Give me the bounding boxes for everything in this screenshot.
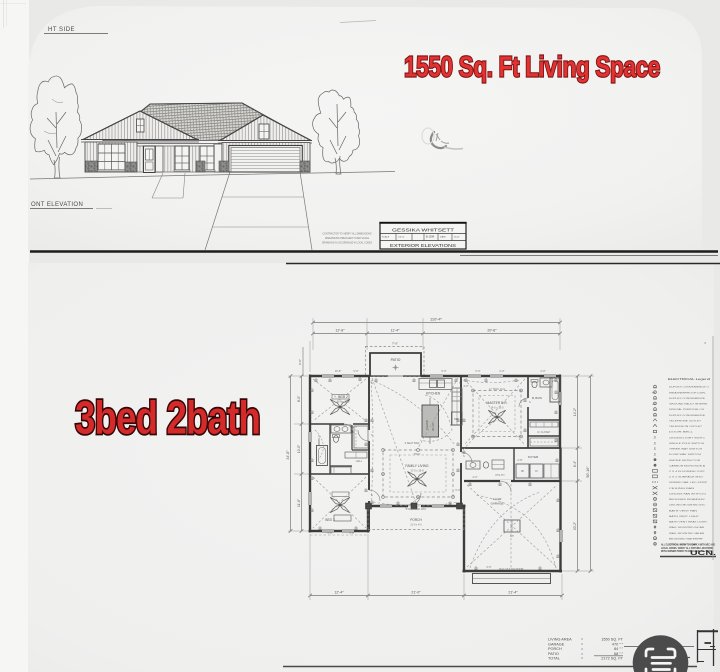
svg-text:KITCHEN: KITCHEN [426,392,441,396]
svg-text:5′-0″: 5′-0″ [353,369,358,373]
svg-text:21′-0″: 21′-0″ [411,591,421,595]
svg-text:PATIO: PATIO [391,358,401,362]
svg-text:HT SIDE: HT SIDE [48,27,75,33]
svg-text:BED 3: BED 3 [325,518,334,522]
svg-text:16-0 x 8-0 OH DOOR: 16-0 x 8-0 OH DOOR [499,567,524,571]
svg-text:CARBON MONOXIDE A: CARBON MONOXIDE A [669,464,706,467]
svg-text:10′-0″: 10′-0″ [297,444,301,453]
svg-text:SCALE: SCALE [382,236,390,239]
svg-text:S: S [506,481,508,485]
svg-text:S: S [463,454,465,458]
svg-text:DIMENSIONS PREVALENT OVER SCAL: DIMENSIONS PREVALENT OVER SCALE [325,237,369,240]
svg-text:470 ″ ″: 470 ″ ″ [612,642,624,646]
svg-text:6′-0″: 6′-0″ [475,369,480,373]
svg-text:WEATHERPROOF DUPL: WEATHERPROOF DUPL [669,391,707,394]
svg-text:1550 Sq. Ft Living Space: 1550 Sq. Ft Living Space [404,52,660,84]
svg-text:M. BATH: M. BATH [532,396,542,400]
svg-text:4′-2″: 4′-2″ [472,475,477,479]
svg-text:TELEVISION OUTLET: TELEVISION OUTLET [669,426,703,428]
svg-text:4′-0″: 4′-0″ [540,369,545,373]
svg-text:M. CLOSET: M. CLOSET [538,431,551,434]
svg-text:DUPLEX CONVENIENCE O: DUPLEX CONVENIENCE O [669,387,709,389]
svg-text:2 CAR: 2 CAR [493,497,503,501]
svg-text:34′-8″: 34′-8″ [286,450,290,460]
svg-text:THREE WAY SWITCH: THREE WAY SWITCH [669,448,703,451]
svg-text:S: S [371,493,373,497]
svg-text:68 ″ ″: 68 ″ ″ [614,652,624,656]
svg-text:05.02: 05.02 [454,237,460,239]
svg-text:DOOR BELL: DOOR BELL [669,432,694,434]
svg-text:CEILING MOUNTED INC: CEILING MOUNTED INC [669,505,706,507]
svg-text:12′-8″: 12′-8″ [335,329,345,333]
svg-text:S: S [529,400,531,404]
svg-text:FOUR WAY SWITCH: FOUR WAY SWITCH [669,453,702,456]
svg-text:20′-8″: 20′-8″ [487,329,497,333]
svg-text:B 1034: B 1034 [426,235,435,239]
svg-text:3′-0″: 3′-0″ [463,384,468,388]
svg-text:RECESSED WATERPRF: RECESSED WATERPRF [669,537,704,540]
svg-text:SPECIAL PURPOSE OU: SPECIAL PURPOSE OU [669,408,705,411]
svg-text:ISLAND: ISLAND [425,420,429,429]
svg-text:6′-0″: 6′-0″ [298,359,302,365]
svg-text:7′-0″: 7′-0″ [392,342,398,346]
svg-text:GFI: GFI [652,404,656,406]
svg-text:CONTRACTOR TO VERIFY ALL DIMEN: CONTRACTOR TO VERIFY ALL DIMENSIONS [323,233,372,236]
svg-text:BATH VENT HEAT LIGHT: BATH VENT HEAT LIGHT [669,521,708,524]
svg-text:2′-8″: 2′-8″ [517,458,522,462]
svg-text:CEILING FAN: CEILING FAN [669,487,695,490]
svg-text:PATIO: PATIO [548,652,559,656]
svg-text:ELECTRICAL Legend: ELECTRICAL Legend [668,377,710,381]
svg-text:GROUND FAULT INTERR: GROUND FAULT INTERR [669,403,708,406]
svg-text:2 X 4 FLUORESC FIXT: 2 X 4 FLUORESC FIXT [669,471,706,473]
svg-text:TRAY: TRAY [414,452,421,456]
svg-text:ONT ELEVATION: ONT ELEVATION [31,202,83,208]
svg-text:1/4"=1': 1/4"=1' [398,237,405,239]
svg-text:9′-0″: 9′-0″ [486,565,491,569]
svg-text:GESSIKA WHITSETT: GESSIKA WHITSETT [392,228,455,233]
svg-text:GARAGE: GARAGE [548,642,565,646]
svg-text:5′-0″: 5′-0″ [441,369,446,373]
svg-text:DATE: DATE [440,236,446,239]
svg-text:TOTAL: TOTAL [548,657,560,661]
svg-text:DUPLEX CONVENIENCE: DUPLEX CONVENIENCE [669,415,706,417]
svg-text:LIVING AREA: LIVING AREA [548,638,572,642]
svg-text:11′-6″: 11′-6″ [297,498,301,507]
svg-text:21′-4″: 21′-4″ [508,591,518,595]
svg-text:GARAGE: GARAGE [491,502,504,506]
svg-text:CEILING FAN WITH LIG: CEILING FAN WITH LIG [669,493,706,496]
svg-text:RECESSED INCANDESC: RECESSED INCANDESC [669,498,706,501]
svg-text:S: S [352,425,354,429]
svg-text:17 TRAY CLG: 17 TRAY CLG [489,387,505,391]
svg-text:6′-4″: 6′-4″ [573,460,577,467]
svg-text:36 x 84: 36 x 84 [432,422,435,431]
svg-text:SINGLE POLE SWITCH: SINGLE POLE SWITCH [669,443,705,445]
svg-text:110′-4″: 110′-4″ [430,317,443,322]
svg-text:5′-8″: 5′-8″ [349,531,354,535]
svg-text:PORCH: PORCH [410,518,422,522]
svg-text:2 X 2 SURFACE MTD: 2 X 2 SURFACE MTD [669,476,704,479]
svg-text:BATH VENT FAN: BATH VENT FAN [669,509,698,512]
svg-text:EXTERIOR ELEVATIONS: EXTERIOR ELEVATIONS [390,243,456,248]
svg-text:W: W [521,469,524,473]
svg-text:12′-4″: 12′-4″ [334,591,344,595]
svg-text:WH: WH [510,535,514,538]
svg-text:UNDER CAB. LED STRIP: UNDER CAB. LED STRIP [669,481,708,484]
svg-text:11′-4″: 11′-4″ [391,329,401,333]
svg-text:9 SEAT BAR: 9 SEAT BAR [405,441,420,445]
svg-text:14′-2″: 14′-2″ [573,407,577,416]
svg-text:1550 SQ. FT: 1550 SQ. FT [601,638,623,642]
svg-text:FAMILY LIVING: FAMILY LIVING [405,464,429,468]
svg-text:16′-8″: 16′-8″ [335,369,342,373]
svg-text:17-0 x 16-8: 17-0 x 16-8 [410,469,424,473]
svg-text:8′-0″: 8′-0″ [297,395,301,402]
svg-text:2 6080 SGD WIN: 2 6080 SGD WIN [406,507,426,511]
svg-text:MASTER B.R.: MASTER B.R. [486,401,507,405]
svg-text:5′-8″: 5′-8″ [327,531,332,535]
svg-text:5′-0″: 5′-0″ [455,488,460,492]
svg-text:6′-0″: 6′-0″ [499,369,504,373]
svg-text:UTILITY: UTILITY [495,473,505,477]
svg-text:S: S [459,381,461,385]
svg-text:21-0 x 4-0: 21-0 x 4-0 [410,524,422,527]
svg-text:CEILING LIGHT SWITC: CEILING LIGHT SWITC [669,437,706,439]
svg-text:D: D [535,469,537,473]
svg-text:FOYER: FOYER [528,455,539,459]
svg-text:S: S [371,433,373,437]
svg-text:50′-10″: 50′-10″ [586,466,590,478]
svg-text:20′-2″: 20′-2″ [573,521,577,530]
svg-text:DUPLEX CONVENIENCE: DUPLEX CONVENIENCE [669,398,706,400]
svg-text:WALL MOUNTED INCAN: WALL MOUNTED INCAN [669,526,705,529]
svg-text:DRAWINGS IN ACCORDANCE W LOCAL: DRAWINGS IN ACCORDANCE W LOCAL CODES [322,242,372,245]
svg-text:WALL MOUNTED VALAN: WALL MOUNTED VALAN [669,532,705,535]
svg-text:84 ″ ″: 84 ″ ″ [614,647,624,651]
svg-text:PORCH: PORCH [548,647,562,651]
svg-text:S: S [371,381,373,385]
svg-text:BATH VENT LIGHT: BATH VENT LIGHT [669,515,700,518]
svg-text:HALL: HALL [356,459,363,463]
svg-text:3bed 2bath: 3bed 2bath [75,392,260,444]
svg-text:TELEPHONE OUTLET: TELEPHONE OUTLET [669,420,702,422]
svg-text:SMOKE DETECTOR: SMOKE DETECTOR [669,460,701,462]
svg-text:2172 SQ. FT: 2172 SQ. FT [601,657,623,661]
